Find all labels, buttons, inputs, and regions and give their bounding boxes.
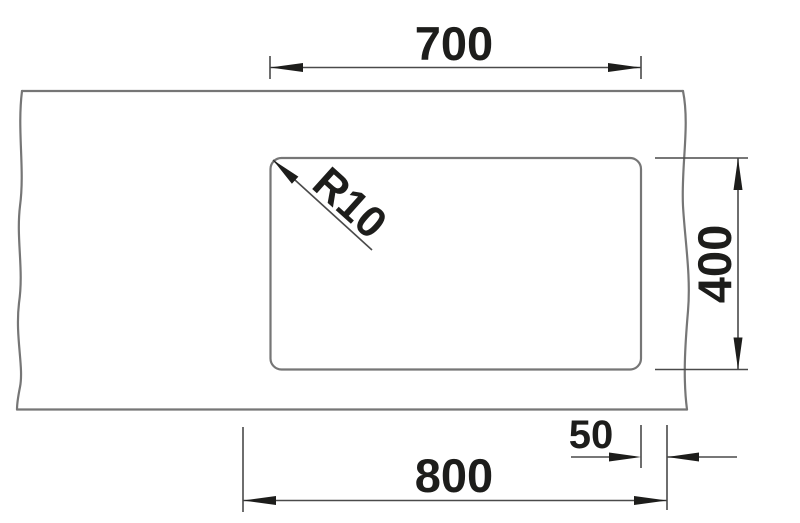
dim-50-arrow-right-icon (609, 453, 641, 462)
leader-r10: R10 (273, 158, 396, 250)
worktop-outline (17, 91, 689, 410)
dim-400: 400 (655, 158, 748, 370)
dim-700-label: 700 (415, 17, 493, 70)
dim-50-arrow-left-icon (667, 453, 699, 462)
leader-r10-arrow-icon (273, 160, 298, 184)
dim-50-label: 50 (569, 413, 614, 457)
dim-400-label: 400 (688, 225, 741, 303)
dim-800-label: 800 (415, 449, 493, 502)
dim-400-arrow-down-icon (734, 338, 743, 370)
dim-800-arrow-right-icon (634, 496, 667, 505)
leader-r10-label: R10 (303, 158, 396, 248)
dim-700-arrow-left-icon (270, 63, 303, 72)
dim-700-arrow-right-icon (608, 63, 641, 72)
dim-400-arrow-up-icon (734, 158, 743, 190)
dimension-drawing: 700 400 R10 800 (0, 0, 800, 523)
drawing-canvas: 700 400 R10 800 (0, 0, 800, 523)
dim-700: 700 (270, 17, 641, 79)
dim-50: 50 (569, 413, 737, 468)
worktop-left-break-line (17, 91, 22, 410)
dim-800-arrow-left-icon (243, 496, 276, 505)
